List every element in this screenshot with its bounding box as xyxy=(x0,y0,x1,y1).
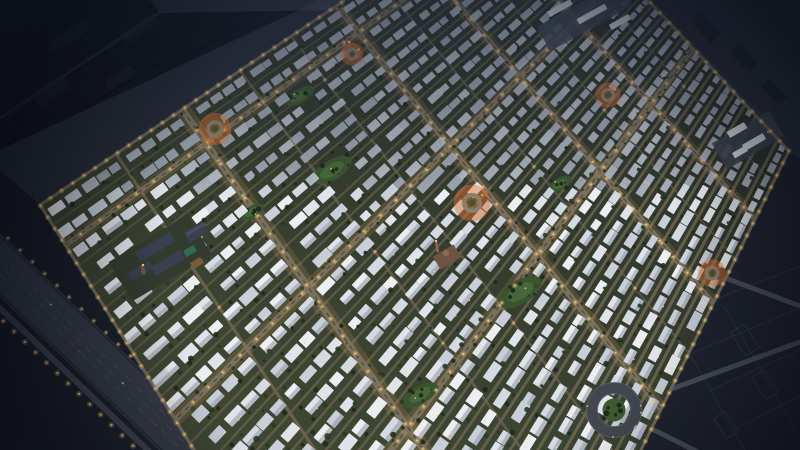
aerial-city-render xyxy=(0,0,800,450)
vignette-overlay xyxy=(0,0,800,450)
masterplan-dusk-scene xyxy=(0,0,800,450)
